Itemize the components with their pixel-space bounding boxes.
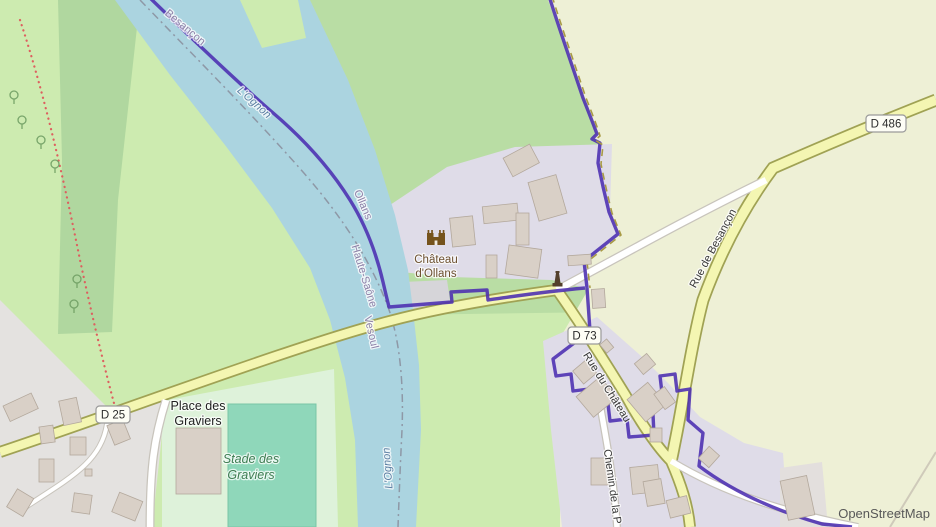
road-shield-d25: D 25: [96, 406, 130, 423]
building: [39, 459, 54, 482]
svg-text:D 486: D 486: [871, 119, 902, 131]
svg-text:D 25: D 25: [101, 410, 125, 422]
label-place-graviers-line1: Place des: [171, 399, 226, 413]
label-stade-graviers-line1: Stade des: [223, 452, 279, 466]
building: [176, 428, 221, 494]
map-canvas[interactable]: Besançon L'Ognon Ollans Haute-Saône Veso…: [0, 0, 936, 527]
road-shield-d486: D 486: [866, 115, 906, 132]
svg-text:D 73: D 73: [572, 331, 596, 343]
attribution-link[interactable]: OpenStreetMap: [838, 506, 930, 521]
building: [482, 203, 519, 224]
road-shield-d73: D 73: [568, 327, 601, 344]
building: [516, 213, 529, 245]
label-chateau-line2: d'Ollans: [415, 268, 456, 280]
building: [568, 254, 592, 266]
label-chateau-line1: Château: [414, 254, 457, 266]
label-stade-graviers-line2: Graviers: [227, 468, 274, 482]
building: [72, 493, 92, 514]
building: [450, 216, 476, 247]
building: [505, 245, 542, 278]
building: [486, 255, 497, 278]
building: [650, 428, 662, 442]
building: [643, 479, 665, 507]
building: [591, 289, 605, 309]
landuse-layer: [0, 0, 936, 527]
building: [39, 425, 55, 444]
building: [85, 469, 92, 476]
label-place-graviers-line2: Graviers: [174, 414, 221, 428]
map-viewport[interactable]: Besançon L'Ognon Ollans Haute-Saône Veso…: [0, 0, 936, 527]
building: [70, 437, 86, 455]
